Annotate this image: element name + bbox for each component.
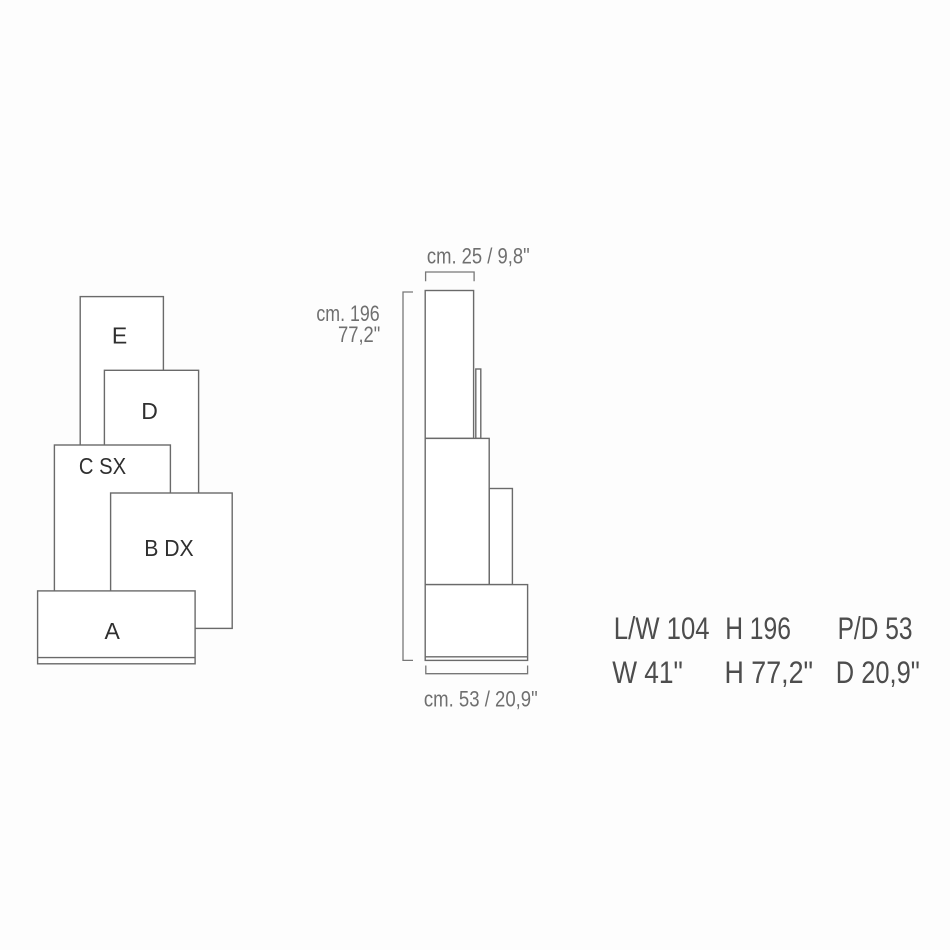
svg-text:A: A: [105, 618, 121, 644]
svg-text:L/W 104: L/W 104: [614, 610, 710, 646]
svg-text:D 20,9": D 20,9": [836, 654, 920, 690]
svg-text:E: E: [112, 323, 127, 349]
svg-text:cm. 25 / 9,8": cm. 25 / 9,8": [427, 244, 530, 269]
svg-text:B DX: B DX: [144, 535, 194, 561]
svg-text:C SX: C SX: [79, 453, 126, 479]
svg-text:77,2": 77,2": [338, 322, 380, 347]
svg-text:P/D 53: P/D 53: [838, 610, 913, 646]
svg-text:W 41": W 41": [612, 654, 683, 690]
svg-text:cm. 53 / 20,9": cm. 53 / 20,9": [424, 686, 538, 711]
svg-text:D: D: [141, 398, 158, 424]
svg-text:H 77,2": H 77,2": [725, 654, 814, 690]
svg-text:H 196: H 196: [725, 610, 791, 646]
